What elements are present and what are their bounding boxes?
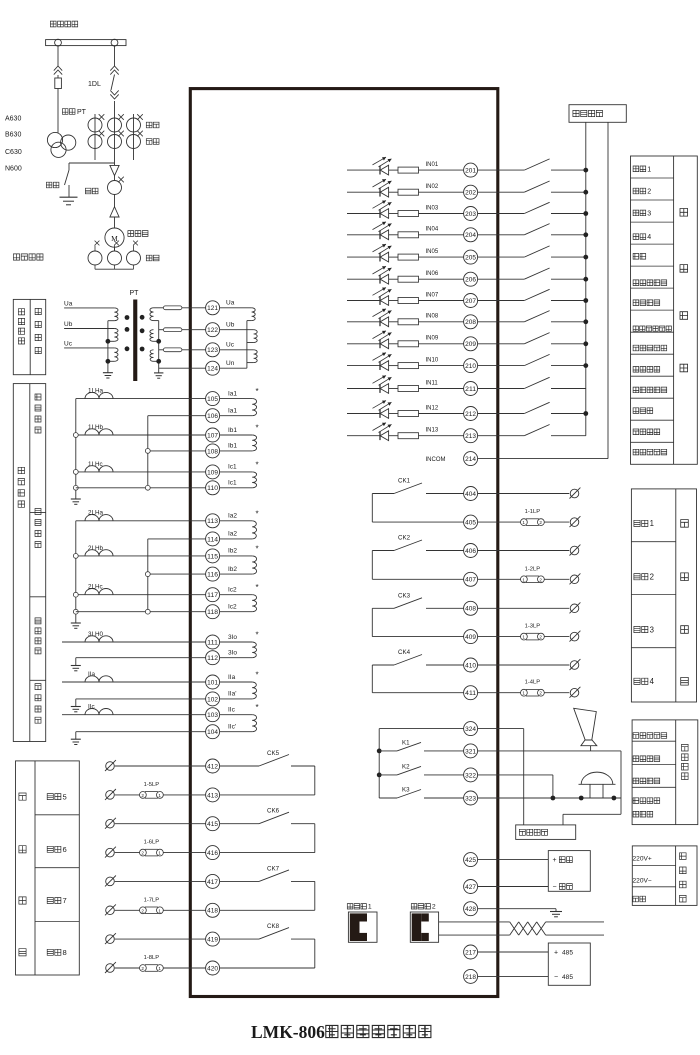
svg-text:410: 410: [465, 662, 476, 669]
svg-text:406: 406: [465, 548, 476, 555]
svg-text:1: 1: [647, 166, 651, 173]
svg-text:*: *: [256, 544, 259, 553]
svg-text:C630: C630: [5, 149, 22, 156]
svg-text:110: 110: [207, 485, 218, 492]
svg-text:425: 425: [465, 857, 476, 864]
svg-text:Un: Un: [226, 360, 235, 367]
svg-text:IN01: IN01: [426, 162, 439, 168]
svg-text:IN07: IN07: [426, 292, 439, 298]
svg-text:418: 418: [207, 908, 218, 915]
svg-text:IN09: IN09: [426, 336, 439, 342]
svg-text:IN04: IN04: [426, 227, 439, 233]
svg-text:408: 408: [465, 606, 476, 613]
svg-text:IIa: IIa: [88, 671, 95, 678]
svg-text:IN12: IN12: [426, 405, 439, 411]
svg-text:323: 323: [465, 795, 476, 802]
svg-text:1: 1: [158, 793, 161, 798]
svg-text:206: 206: [465, 277, 476, 284]
svg-text:PT: PT: [130, 290, 140, 297]
svg-text:413: 413: [207, 792, 218, 799]
svg-text:101: 101: [207, 679, 218, 686]
svg-text:2: 2: [539, 520, 542, 525]
svg-text:2: 2: [141, 966, 144, 971]
svg-text:113: 113: [207, 518, 218, 525]
svg-text:117: 117: [207, 592, 218, 599]
svg-text:324: 324: [465, 726, 476, 733]
svg-text:114: 114: [207, 536, 218, 543]
svg-text:−: −: [553, 884, 557, 891]
svg-text:427: 427: [465, 884, 476, 891]
svg-text:115: 115: [207, 553, 218, 560]
svg-text:Ic2: Ic2: [228, 604, 237, 611]
svg-text:Ic2: Ic2: [228, 587, 237, 594]
svg-text:1-1LP: 1-1LP: [525, 509, 541, 515]
svg-text:4: 4: [647, 234, 651, 241]
svg-text:K3: K3: [402, 787, 410, 794]
svg-text:2: 2: [647, 189, 651, 196]
svg-text:204: 204: [465, 232, 476, 239]
svg-text:2: 2: [141, 908, 144, 913]
svg-text:2: 2: [539, 691, 542, 696]
svg-text:405: 405: [465, 520, 476, 527]
svg-text:411: 411: [465, 690, 476, 697]
svg-text:2: 2: [539, 577, 542, 582]
svg-text:111: 111: [207, 639, 218, 646]
svg-text:3Io: 3Io: [228, 634, 237, 641]
svg-text:212: 212: [465, 411, 476, 418]
svg-text:6: 6: [63, 845, 67, 854]
svg-text:322: 322: [465, 772, 476, 779]
svg-text:Ib1: Ib1: [228, 427, 237, 434]
svg-text:2: 2: [141, 851, 144, 856]
svg-text:116: 116: [207, 572, 218, 579]
svg-text:485: 485: [562, 950, 573, 957]
svg-text:N600: N600: [5, 165, 22, 172]
svg-text:102: 102: [207, 696, 218, 703]
svg-text:Ia2: Ia2: [228, 531, 237, 538]
svg-text:IN11: IN11: [426, 380, 439, 386]
svg-text:*: *: [256, 509, 259, 518]
svg-text:419: 419: [207, 937, 218, 944]
svg-text:409: 409: [465, 634, 476, 641]
svg-text:1: 1: [522, 577, 525, 582]
svg-text:205: 205: [465, 255, 476, 262]
svg-text:IIc': IIc': [228, 724, 236, 731]
svg-text:1: 1: [158, 966, 161, 971]
svg-text:1-8LP: 1-8LP: [144, 955, 160, 961]
svg-text:3: 3: [647, 210, 651, 217]
svg-text:*: *: [256, 424, 259, 433]
svg-text:Ia2: Ia2: [228, 513, 237, 520]
svg-text:202: 202: [465, 190, 476, 197]
svg-text:K1: K1: [402, 740, 410, 747]
svg-text:7: 7: [63, 896, 67, 905]
svg-text:416: 416: [207, 850, 218, 857]
svg-text:1-4LP: 1-4LP: [525, 680, 541, 686]
svg-text:1-3LP: 1-3LP: [525, 624, 541, 630]
svg-text:Ua: Ua: [226, 300, 235, 307]
svg-text:CK2: CK2: [398, 535, 411, 542]
svg-text:+: +: [554, 950, 558, 957]
svg-text:420: 420: [207, 965, 218, 972]
svg-text:IN08: IN08: [426, 314, 439, 320]
svg-text:412: 412: [207, 763, 218, 770]
svg-text:217: 217: [465, 949, 476, 956]
svg-text:Ia1: Ia1: [228, 390, 237, 397]
svg-text:220V−: 220V−: [633, 877, 652, 884]
svg-text:LMK-806: LMK-806: [251, 1022, 325, 1042]
svg-text:Ua: Ua: [64, 301, 73, 308]
svg-text:1-2LP: 1-2LP: [525, 566, 541, 572]
svg-text:IIa: IIa: [228, 674, 236, 681]
svg-text:Ib2: Ib2: [228, 548, 237, 555]
svg-text:Uc: Uc: [64, 341, 73, 348]
svg-text:3Io: 3Io: [228, 650, 237, 657]
svg-text:220V+: 220V+: [633, 855, 652, 862]
svg-text:1: 1: [368, 904, 372, 911]
svg-text:Ub: Ub: [226, 322, 235, 329]
svg-text:*: *: [256, 671, 259, 680]
svg-text:*: *: [256, 583, 259, 592]
svg-text:211: 211: [465, 386, 476, 393]
svg-text:IIc: IIc: [228, 707, 236, 714]
svg-text:1-5LP: 1-5LP: [144, 782, 160, 788]
svg-text:IN02: IN02: [426, 184, 439, 190]
svg-text:Ic1: Ic1: [228, 480, 237, 487]
svg-text:2: 2: [539, 635, 542, 640]
svg-text:Ub: Ub: [64, 321, 73, 328]
svg-text:122: 122: [207, 327, 218, 334]
svg-text:209: 209: [465, 341, 476, 348]
svg-text:108: 108: [207, 448, 218, 455]
svg-text:2: 2: [650, 573, 654, 582]
svg-text:104: 104: [207, 729, 218, 736]
svg-text:B630: B630: [5, 131, 21, 138]
svg-text:123: 123: [207, 347, 218, 354]
svg-text:Ib1: Ib1: [228, 443, 237, 450]
svg-text:106: 106: [207, 413, 218, 420]
svg-text:IN05: IN05: [426, 249, 439, 255]
svg-text:1: 1: [522, 520, 525, 525]
svg-text:321: 321: [465, 748, 476, 755]
svg-text:201: 201: [465, 168, 476, 175]
svg-text:INCOM: INCOM: [426, 457, 446, 463]
svg-text:103: 103: [207, 712, 218, 719]
svg-text:107: 107: [207, 432, 218, 439]
svg-text:4: 4: [650, 677, 655, 686]
svg-text:112: 112: [207, 655, 218, 662]
svg-text:Ic1: Ic1: [228, 464, 237, 471]
svg-text:118: 118: [207, 609, 218, 616]
svg-text:1-7LP: 1-7LP: [144, 897, 160, 903]
svg-text:218: 218: [465, 974, 476, 981]
svg-text:485: 485: [562, 974, 573, 981]
svg-text:*: *: [256, 631, 259, 640]
svg-text:404: 404: [465, 491, 476, 498]
svg-text:213: 213: [465, 433, 476, 440]
svg-text:203: 203: [465, 211, 476, 218]
svg-text:121: 121: [207, 305, 218, 312]
svg-text:IN13: IN13: [426, 428, 439, 434]
svg-text:207: 207: [465, 298, 476, 305]
svg-text:*: *: [256, 460, 259, 469]
svg-text:−: −: [554, 974, 558, 981]
svg-text:IIa': IIa': [228, 691, 236, 698]
svg-text:CK1: CK1: [398, 478, 411, 485]
svg-text:210: 210: [465, 363, 476, 370]
svg-text:CK7: CK7: [267, 865, 280, 872]
svg-text:*: *: [256, 387, 259, 396]
svg-text:Ib2: Ib2: [228, 566, 237, 573]
svg-text:CK3: CK3: [398, 592, 411, 599]
svg-text:A630: A630: [5, 116, 21, 123]
svg-text:PT: PT: [77, 109, 87, 116]
svg-text:CK4: CK4: [398, 649, 411, 656]
svg-text:415: 415: [207, 821, 218, 828]
svg-text:Uc: Uc: [226, 342, 235, 349]
svg-text:407: 407: [465, 577, 476, 584]
svg-text:2: 2: [141, 793, 144, 798]
svg-text:*: *: [256, 703, 259, 712]
svg-text:1DL: 1DL: [88, 81, 101, 88]
svg-text:1: 1: [650, 519, 654, 528]
svg-text:109: 109: [207, 469, 218, 476]
svg-text:214: 214: [465, 456, 476, 463]
svg-text:124: 124: [207, 366, 218, 373]
svg-text:IN06: IN06: [426, 271, 439, 277]
svg-text:8: 8: [63, 948, 67, 957]
svg-text:1: 1: [522, 635, 525, 640]
svg-text:CK6: CK6: [267, 808, 280, 815]
svg-text:CK8: CK8: [267, 923, 280, 930]
svg-text:417: 417: [207, 879, 218, 886]
svg-text:105: 105: [207, 396, 218, 403]
svg-text:IN03: IN03: [426, 205, 439, 211]
svg-text:1: 1: [522, 691, 525, 696]
svg-text:208: 208: [465, 319, 476, 326]
svg-text:+: +: [553, 857, 557, 864]
svg-text:K2: K2: [402, 764, 410, 771]
svg-text:IN10: IN10: [426, 357, 439, 363]
svg-text:CK5: CK5: [267, 750, 280, 757]
svg-text:2: 2: [432, 904, 436, 911]
svg-text:1: 1: [158, 851, 161, 856]
svg-text:5: 5: [63, 792, 67, 801]
svg-text:1-6LP: 1-6LP: [144, 840, 160, 846]
svg-text:Ia1: Ia1: [228, 408, 237, 415]
svg-text:3: 3: [650, 625, 654, 634]
svg-text:1: 1: [158, 908, 161, 913]
svg-text:428: 428: [465, 906, 476, 913]
